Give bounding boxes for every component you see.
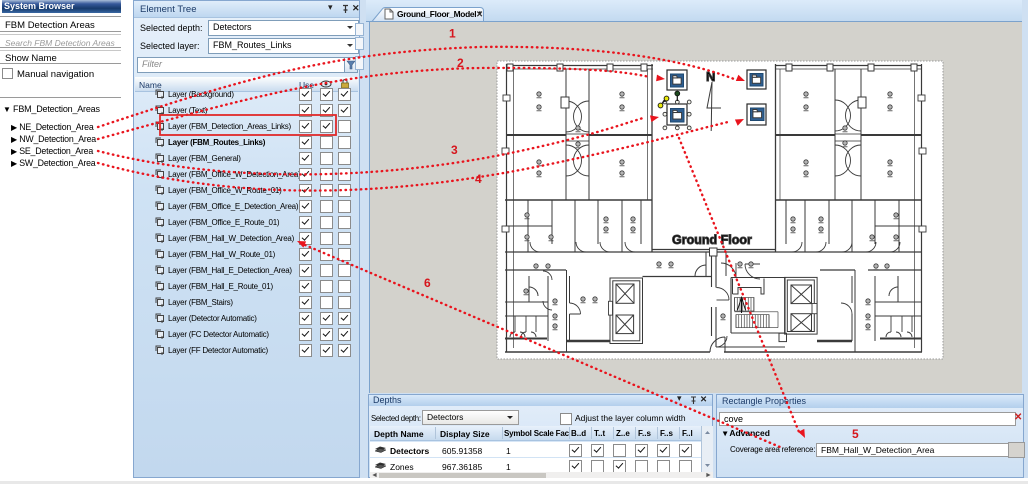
- svg-text:Ground Floor: Ground Floor: [672, 233, 752, 247]
- svg-text:N: N: [706, 69, 715, 84]
